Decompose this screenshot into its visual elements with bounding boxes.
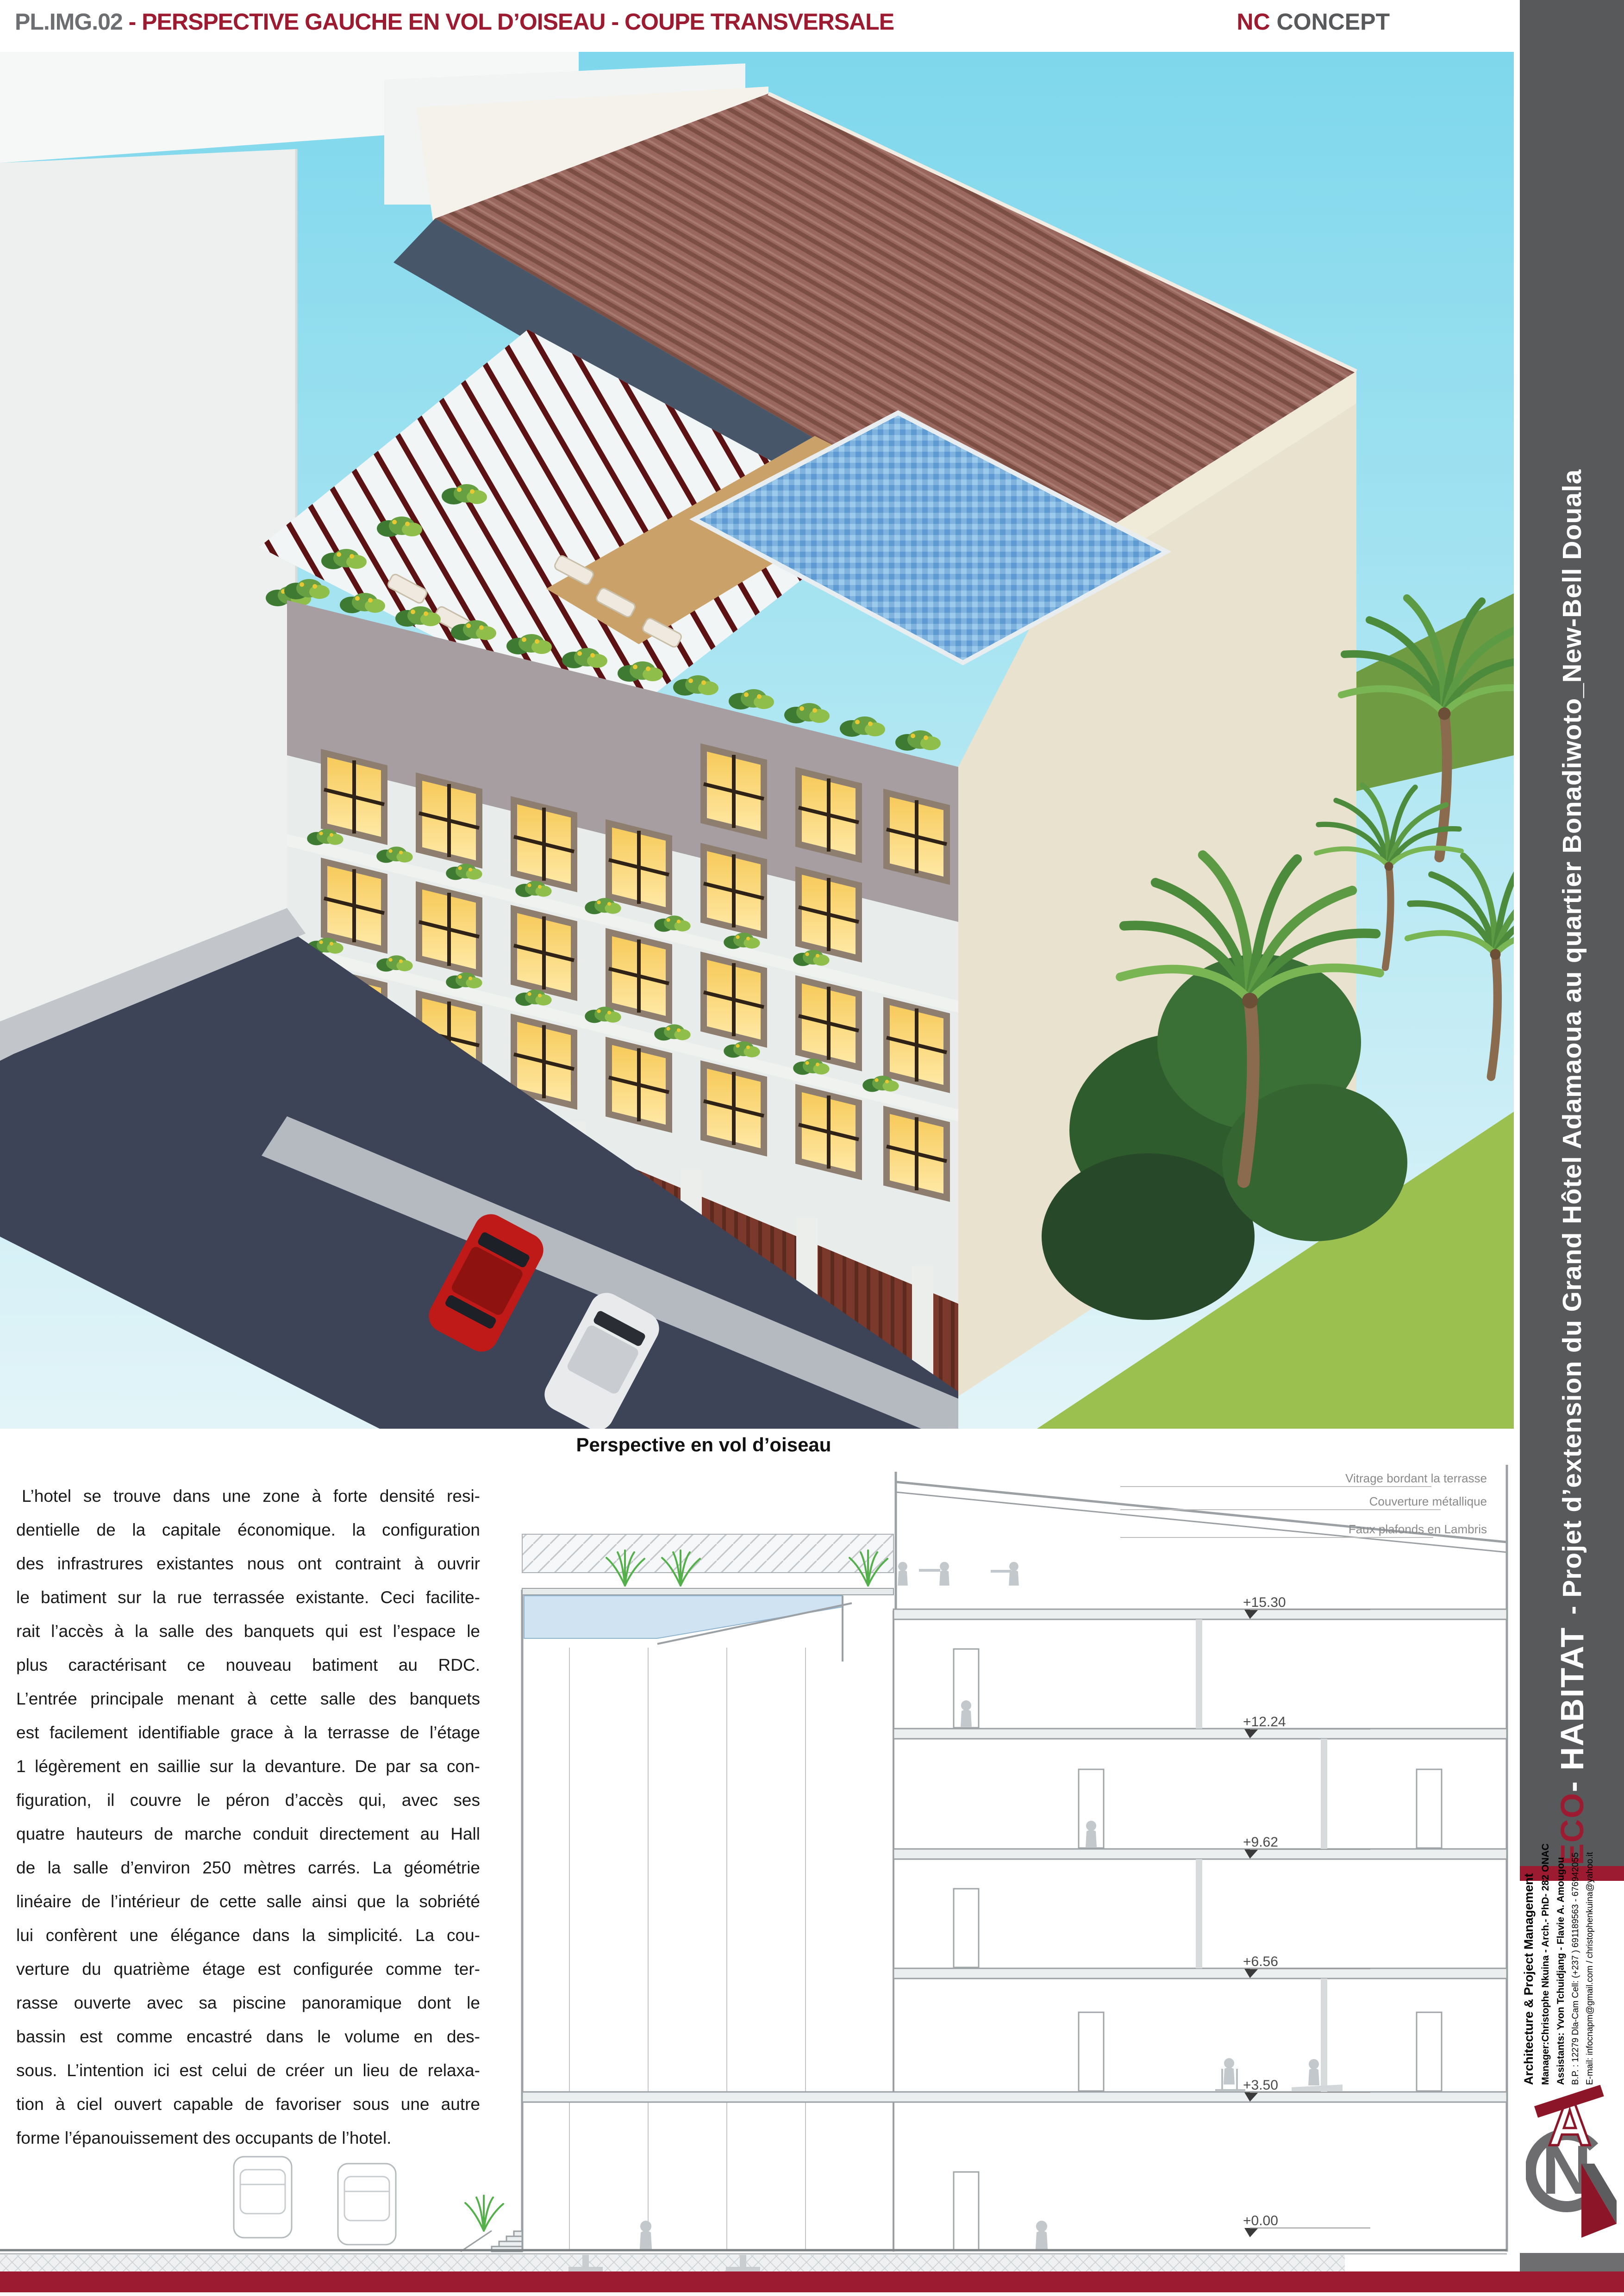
brand-concept: CONCEPT (1270, 9, 1390, 35)
level-label: +3.50 (1243, 2078, 1278, 2093)
sheet-header: PL.IMG.02 - PERSPECTIVE GAUCHE EN VOL D’… (0, 0, 1514, 52)
car-outline (338, 2164, 396, 2245)
level-label: +15.30 (1243, 1595, 1286, 1610)
sidebar-project-title: ECO - HABITAT - Projet d’extension du Gr… (1520, 32, 1624, 1865)
sidebar-project-text: - Projet d’extension du Grand Hôtel Adam… (1557, 469, 1587, 1615)
footer-red-band (0, 2271, 1624, 2292)
annotation-label: Faux plafonds en Lambris (1349, 1522, 1487, 1536)
sidebar-gray-strip (1520, 2253, 1624, 2272)
firm-brand: NC CONCEPT (1237, 8, 1390, 35)
entrance-steps (461, 2231, 522, 2252)
terrace-slab (522, 1588, 893, 1595)
level-label: +12.24 (1243, 1714, 1286, 1730)
level-label: +9.62 (1243, 1835, 1278, 1850)
floor-slabs (522, 1609, 1507, 2102)
annotation-label: Couverture métallique (1369, 1494, 1487, 1508)
annotation-label: Vitrage bordant la terrasse (1345, 1471, 1487, 1485)
contact-block: Architecture & Project Management Manage… (1520, 1874, 1624, 2085)
car-outline (234, 2157, 292, 2238)
interior-elements (640, 1619, 1442, 2251)
entrance-plant (465, 2196, 503, 2231)
street-ground (0, 2250, 1507, 2272)
level-label: +6.56 (1243, 1954, 1278, 1969)
firm-logo: N A (1526, 2085, 1618, 2247)
level-markers: +15.30 +12.24 +9.62 +6.56 +3.50 +0.00 (1243, 1595, 1370, 2237)
level-label: +0.00 (1243, 2213, 1278, 2228)
brand-nc: NC (1237, 9, 1270, 35)
annotations: Vitrage bordant la terrasse Couverture m… (1120, 1471, 1487, 1537)
assistants-line: Assistants: Yvon Tchuidjang - Flavie A. … (1555, 1874, 1567, 2085)
background-building-wall (0, 149, 296, 1052)
email-line: E-mail: infocnapm@gmail.com / christophe… (1585, 1874, 1595, 2085)
sheet-code: PL.IMG.02 (15, 9, 123, 35)
sidebar-habitat: - HABITAT (1554, 1627, 1591, 1792)
firm-name: Architecture & Project Management (1522, 1874, 1536, 2085)
manager-line: Manager:Christophe Nkuina - Arch.- PhD- … (1540, 1874, 1551, 2085)
sheet-title: PL.IMG.02 - PERSPECTIVE GAUCHE EN VOL D’… (15, 8, 894, 35)
plan-sheet: PL.IMG.02 - PERSPECTIVE GAUCHE EN VOL D’… (0, 0, 1624, 2296)
pool-water-section (524, 1596, 843, 1638)
cross-section-drawing: +15.30 +12.24 +9.62 +6.56 +3.50 +0.00 Vi… (0, 1444, 1624, 2272)
perspective-render (0, 52, 1514, 1429)
sheet-title-text: - PERSPECTIVE GAUCHE EN VOL D’OISEAU - C… (123, 9, 894, 35)
address-phone-line: B.P. : 12279 Dla-Cam Cell: (+237 ) 69118… (1571, 1874, 1581, 2085)
glass-balustrade (522, 1534, 893, 1573)
